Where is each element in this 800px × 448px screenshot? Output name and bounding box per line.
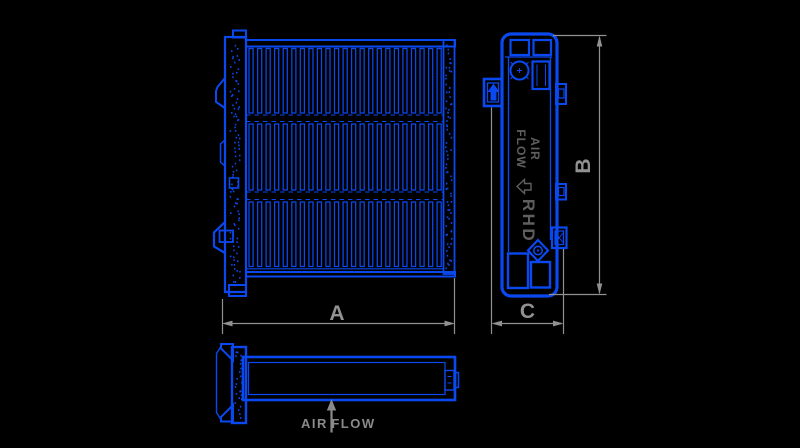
stipple-dot — [447, 216, 449, 218]
stipple-dot — [449, 87, 451, 89]
stipple-dot — [445, 108, 447, 110]
stipple-dot — [240, 376, 242, 378]
stipple-dot — [447, 201, 449, 203]
stipple-dot — [447, 243, 449, 245]
stipple-dot — [446, 67, 448, 69]
stipple-dot — [235, 163, 237, 165]
stipple-dot — [238, 220, 240, 222]
stipple-dot — [241, 382, 243, 384]
stipple-dot — [445, 167, 447, 169]
stipple-dot — [232, 189, 234, 191]
stipple-dot — [448, 112, 450, 114]
stipple-dot — [241, 398, 243, 400]
stipple-dot — [448, 218, 450, 220]
stipple-dot — [451, 137, 453, 139]
stipple-dot — [239, 59, 241, 61]
stipple-dot — [230, 191, 232, 193]
stipple-dot — [230, 91, 232, 93]
stipple-dot — [448, 109, 450, 111]
stipple-dot — [234, 268, 236, 270]
stipple-dot — [230, 212, 232, 214]
stipple-dot — [449, 62, 451, 64]
stipple-dot — [236, 72, 238, 74]
background — [0, 0, 800, 448]
stipple-dot — [237, 98, 239, 100]
stipple-dot — [235, 386, 237, 388]
stipple-dot — [236, 253, 238, 255]
stipple-dot — [233, 259, 235, 261]
stipple-dot — [238, 83, 240, 85]
stipple-dot — [233, 171, 235, 173]
stipple-dot — [234, 224, 236, 226]
stipple-dot — [235, 124, 237, 126]
stipple-dot — [238, 68, 240, 70]
stipple-dot — [449, 67, 451, 69]
stipple-dot — [446, 124, 448, 126]
stipple-dot — [230, 196, 232, 198]
stipple-dot — [447, 255, 449, 257]
stipple-dot — [232, 166, 234, 168]
stipple-dot — [449, 58, 451, 60]
stipple-dot — [231, 264, 233, 266]
stipple-dot — [236, 170, 238, 172]
stipple-dot — [230, 130, 232, 132]
stipple-dot — [445, 268, 447, 270]
stipple-dot — [236, 116, 238, 118]
stipple-dot — [237, 352, 239, 354]
stipple-dot — [239, 106, 241, 108]
stipple-dot — [446, 151, 448, 153]
stipple-dot — [449, 70, 451, 72]
airflow-air-label: AIR — [301, 416, 328, 431]
stipple-dot — [235, 402, 237, 404]
stipple-dot — [446, 45, 448, 47]
stipple-dot — [238, 108, 240, 110]
stipple-dot — [236, 383, 238, 385]
stipple-dot — [446, 84, 448, 86]
stipple-dot — [450, 149, 452, 151]
stipple-dot — [240, 360, 242, 362]
side-flow-label: FLOW — [514, 129, 528, 168]
stipple-dot — [445, 78, 447, 80]
stipple-dot — [238, 213, 240, 215]
stipple-dot — [232, 76, 234, 78]
stipple-dot — [449, 133, 451, 135]
stipple-dot — [235, 355, 237, 357]
stipple-dot — [239, 148, 241, 150]
stipple-dot — [447, 171, 449, 173]
stipple-dot — [237, 55, 239, 57]
stipple-dot — [239, 271, 241, 273]
stipple-dot — [238, 409, 240, 411]
dimension-b-label: B — [572, 158, 595, 173]
stipple-dot — [447, 263, 449, 265]
stipple-dot — [450, 193, 452, 195]
stipple-dot — [234, 264, 236, 266]
stipple-dot — [234, 142, 236, 144]
stipple-dot — [451, 71, 453, 73]
stipple-dot — [235, 45, 237, 47]
stipple-dot — [230, 256, 232, 258]
stipple-dot — [446, 225, 448, 227]
stipple-dot — [239, 217, 241, 219]
dimension-c-label: C — [520, 300, 535, 323]
stipple-dot — [447, 129, 449, 131]
dimension-a-label: A — [329, 302, 344, 325]
airflow-flow-label: FLOW — [331, 416, 375, 431]
stipple-dot — [238, 145, 240, 147]
stipple-dot — [237, 260, 239, 262]
stipple-dot — [240, 406, 242, 408]
stipple-dot — [231, 184, 233, 186]
stipple-dot — [236, 351, 238, 353]
stipple-dot — [448, 246, 450, 248]
stipple-dot — [451, 179, 453, 181]
stipple-dot — [449, 91, 451, 93]
stipple-dot — [235, 113, 237, 115]
stipple-dot — [239, 159, 241, 161]
filter-drawing: A FLOW AIR RH — [0, 0, 800, 448]
stipple-dot — [449, 259, 451, 261]
stipple-dot — [450, 212, 452, 214]
stipple-dot — [446, 142, 448, 144]
stipple-dot — [236, 80, 238, 82]
stipple-dot — [234, 148, 236, 150]
stipple-dot — [230, 66, 232, 68]
stipple-dot — [449, 209, 451, 211]
stipple-dot — [447, 188, 449, 190]
stipple-dot — [446, 164, 448, 166]
stipple-dot — [450, 243, 452, 245]
stipple-dot — [237, 181, 239, 183]
stipple-dot — [240, 355, 242, 357]
stipple-dot — [233, 250, 235, 252]
stipple-dot — [237, 48, 239, 50]
stipple-dot — [239, 397, 241, 399]
stipple-dot — [235, 281, 237, 283]
stipple-dot — [445, 75, 447, 77]
stipple-dot — [232, 56, 234, 58]
stipple-dot — [239, 413, 241, 415]
stipple-dot — [451, 238, 453, 240]
stipple-dot — [447, 158, 449, 160]
stipple-dot — [238, 142, 240, 144]
stipple-dot — [451, 222, 453, 224]
stipple-dot — [446, 188, 448, 190]
stipple-dot — [237, 238, 239, 240]
stipple-dot — [447, 155, 449, 157]
stipple-dot — [234, 206, 236, 208]
stipple-dot — [236, 393, 238, 395]
stipple-dot — [238, 119, 240, 121]
stipple-dot — [236, 137, 238, 139]
stipple-dot — [236, 102, 238, 104]
stipple-dot — [449, 96, 451, 98]
stipple-dot — [240, 390, 242, 392]
stipple-dot — [231, 241, 233, 243]
stipple-dot — [236, 378, 238, 380]
stipple-dot — [241, 394, 243, 396]
stipple-dot — [240, 417, 242, 419]
stipple-dot — [230, 238, 232, 240]
stipple-dot — [238, 228, 240, 230]
stipple-dot — [237, 185, 239, 187]
stipple-dot — [232, 104, 234, 106]
boss-center-dot — [537, 249, 539, 251]
stipple-dot — [237, 198, 239, 200]
stipple-dot — [233, 281, 235, 283]
stipple-dot — [234, 127, 236, 129]
stipple-dot — [446, 183, 448, 185]
stipple-dot — [451, 201, 453, 203]
stipple-dot — [232, 176, 234, 178]
stipple-dot — [235, 151, 237, 153]
stipple-dot — [233, 116, 235, 118]
stipple-dot — [238, 90, 240, 92]
stipple-dot — [236, 203, 238, 205]
stipple-dot — [448, 116, 450, 118]
stipple-dot — [239, 277, 241, 279]
stipple-dot — [450, 104, 452, 106]
stipple-dot — [238, 246, 240, 248]
stipple-dot — [447, 209, 449, 211]
stipple-dot — [239, 155, 241, 157]
stipple-dot — [448, 49, 450, 51]
side-rhd-label: RHD — [519, 199, 538, 243]
stipple-dot — [239, 371, 241, 373]
stipple-dot — [237, 270, 239, 272]
stipple-dot — [233, 245, 235, 247]
stipple-dot — [231, 50, 233, 52]
stipple-dot — [450, 176, 452, 178]
stipple-dot — [235, 130, 237, 132]
stipple-dot — [446, 101, 448, 103]
stipple-dot — [446, 120, 448, 122]
stipple-dot — [451, 230, 453, 232]
stipple-dot — [448, 53, 450, 55]
stipple-dot — [234, 88, 236, 90]
stipple-dot — [236, 241, 238, 243]
stipple-dot — [233, 275, 235, 277]
technical-drawing-canvas: A FLOW AIR RH — [0, 0, 800, 448]
stipple-dot — [230, 232, 232, 234]
stipple-dot — [445, 146, 447, 148]
stipple-dot — [233, 191, 235, 193]
stipple-dot — [232, 73, 234, 75]
stipple-dot — [235, 156, 237, 158]
stipple-dot — [233, 256, 235, 258]
stipple-dot — [446, 234, 448, 236]
stipple-dot — [234, 108, 236, 110]
stipple-dot — [232, 174, 234, 176]
stipple-dot — [235, 202, 237, 204]
stipple-dot — [449, 117, 451, 119]
stipple-dot — [234, 62, 236, 64]
stipple-dot — [232, 94, 234, 96]
stipple-dot — [240, 363, 242, 365]
side-air-label: AIR — [528, 137, 542, 161]
stipple-dot — [233, 234, 235, 236]
stipple-dot — [448, 204, 450, 206]
stipple-dot — [232, 58, 234, 60]
stipple-dot — [451, 260, 453, 262]
stipple-dot — [450, 195, 452, 197]
stipple-dot — [237, 210, 239, 212]
stipple-dot — [239, 138, 241, 140]
stipple-dot — [238, 134, 240, 136]
stipple-dot — [231, 112, 233, 114]
stipple-dot — [446, 92, 448, 94]
stipple-dot — [240, 368, 242, 370]
stipple-dot — [446, 250, 448, 252]
